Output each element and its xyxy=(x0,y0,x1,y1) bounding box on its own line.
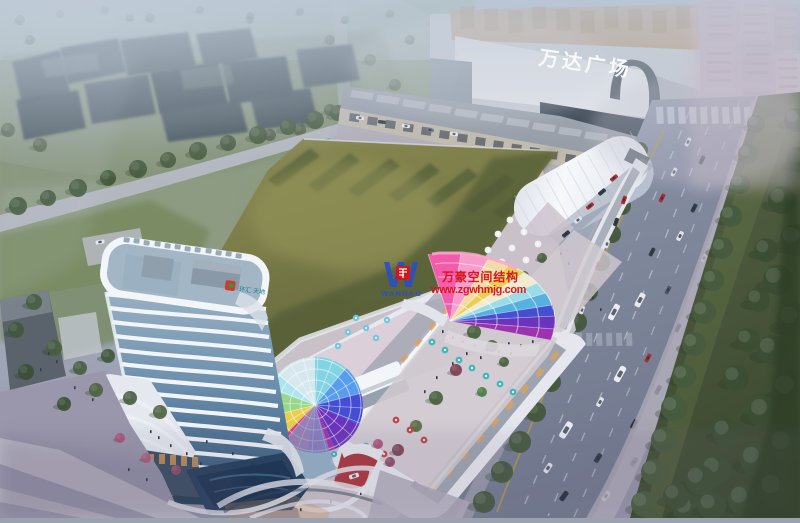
svg-text:www.zgwhmjg.com: www.zgwhmjg.com xyxy=(430,284,527,296)
svg-text:万豪空间结构: 万豪空间结构 xyxy=(441,269,519,284)
svg-text:WANHAO: WANHAO xyxy=(381,289,422,298)
